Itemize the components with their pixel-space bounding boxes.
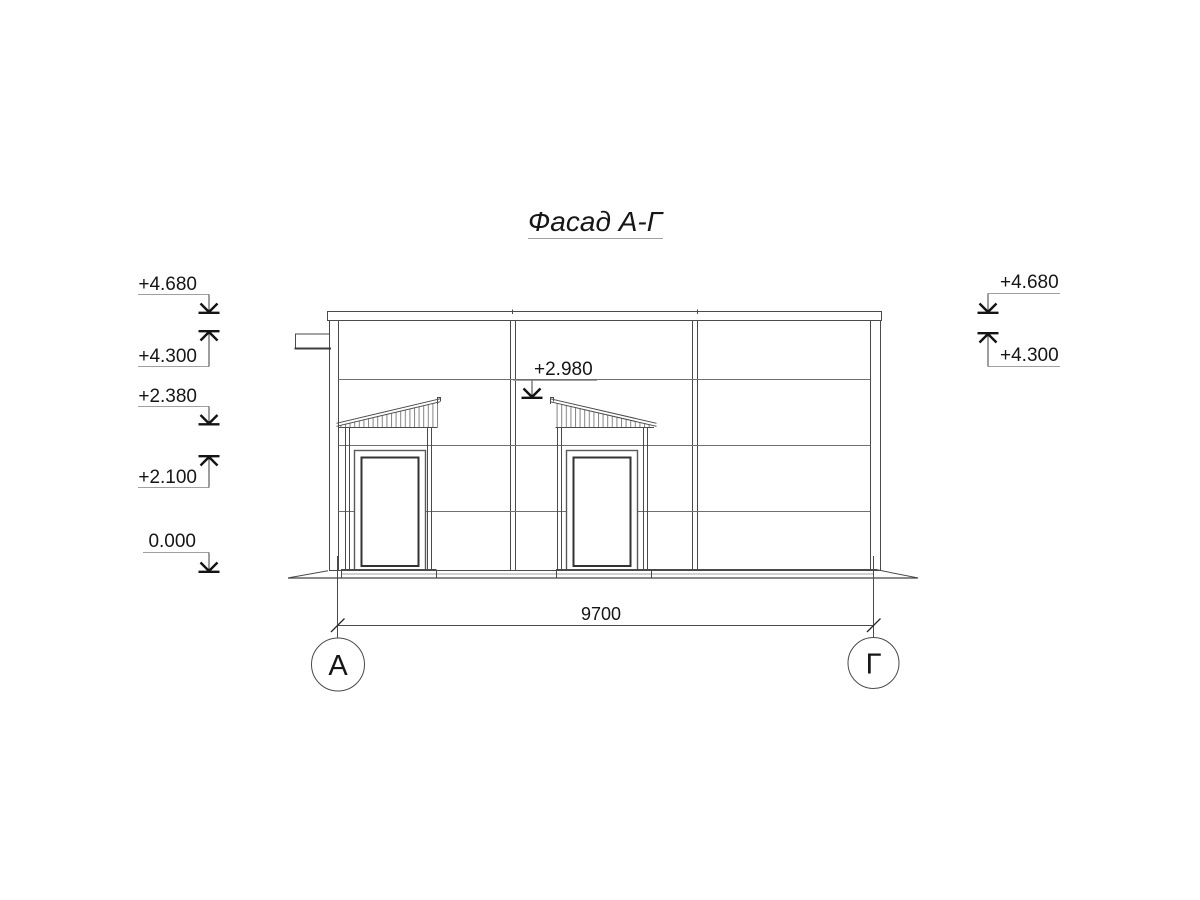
elevation-mark-left-2100: +2.100	[138, 456, 220, 488]
elevation-label: +2.980	[534, 359, 593, 380]
dimension-group: 9700	[331, 556, 881, 638]
title-text: Фасад А-Г	[528, 206, 664, 237]
elevation-mark-canopy-2980: +2.980	[513, 359, 597, 398]
axis-letter: А	[328, 650, 348, 682]
drain-spout	[295, 334, 330, 348]
left-door-leaf	[362, 458, 419, 567]
dimension-value: 9700	[581, 604, 621, 624]
left-door-frame	[355, 451, 426, 571]
axis-bubble-g: Г	[848, 638, 899, 689]
right-canopy-posts	[558, 428, 648, 570]
left-door-unit	[337, 398, 442, 571]
elevation-label: +4.680	[1000, 272, 1059, 293]
right-door-frame	[567, 451, 638, 571]
facade-drawing: Фасад А-Г +4.680	[0, 0, 1200, 900]
elevation-mark-right-4680: +4.680	[978, 272, 1061, 313]
right-door-leaf	[574, 458, 631, 567]
drawing-title: Фасад А-Г	[528, 206, 664, 239]
elevation-label: +4.300	[138, 346, 197, 367]
building-facade	[295, 310, 883, 571]
ground-works	[288, 570, 918, 579]
elevation-label: +4.300	[1000, 345, 1059, 366]
elevation-mark-left-4300: +4.300	[138, 331, 220, 367]
right-door-unit	[550, 398, 657, 571]
elevation-label: +2.380	[138, 386, 197, 407]
elevation-mark-left-2380: +2.380	[138, 386, 220, 424]
elevation-label: +2.100	[138, 467, 197, 488]
elevation-label: +4.680	[138, 274, 197, 295]
elevation-mark-right-4300: +4.300	[978, 333, 1061, 366]
elevation-label: 0.000	[148, 531, 196, 552]
parapet-band	[327, 310, 882, 321]
drawing-sheet: Фасад А-Г +4.680	[0, 0, 1200, 900]
axis-bubble-a: А	[312, 638, 365, 691]
elevation-mark-left-0000: 0.000	[143, 531, 220, 572]
axis-letter: Г	[866, 649, 882, 681]
elevation-mark-left-4680: +4.680	[138, 274, 220, 313]
